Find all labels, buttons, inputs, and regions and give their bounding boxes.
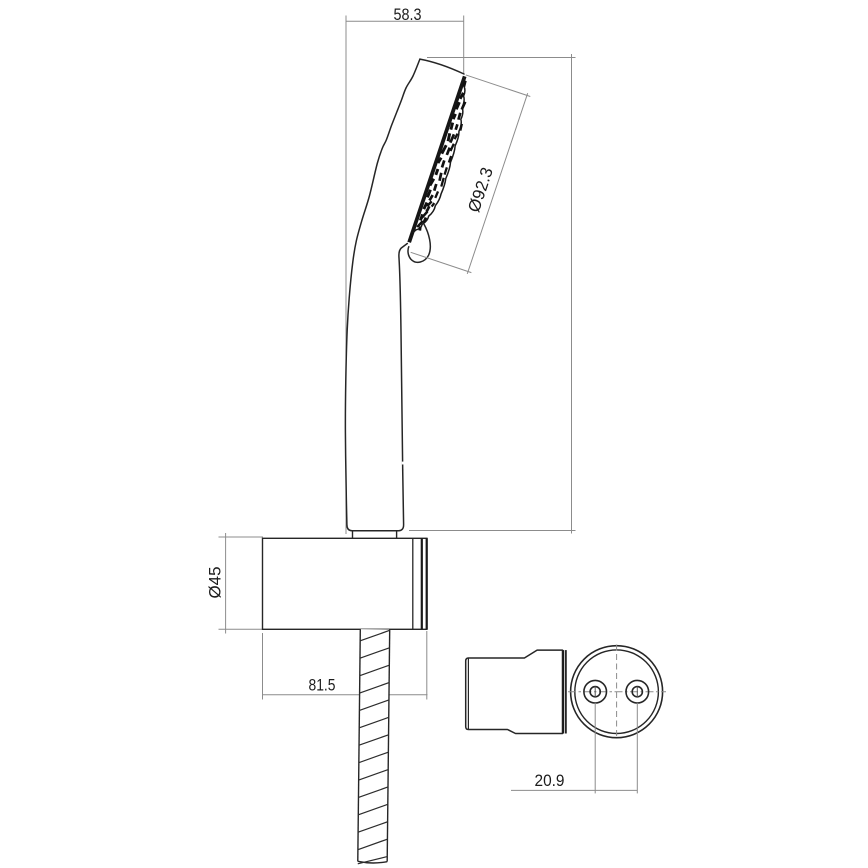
svg-text:Ø45: Ø45 [206,567,225,599]
svg-text:20.9: 20.9 [535,771,565,790]
svg-text:58.3: 58.3 [394,5,422,24]
svg-text:81.5: 81.5 [309,675,336,694]
